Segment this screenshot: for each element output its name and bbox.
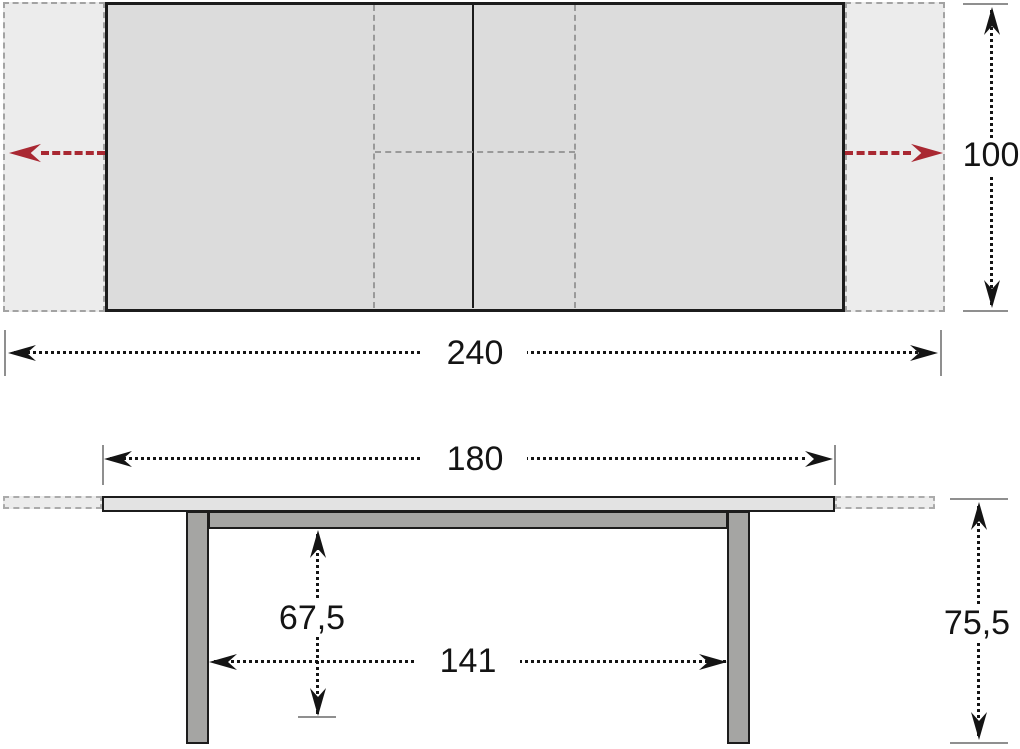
arrowhead-down-icon xyxy=(309,688,327,716)
arrowhead-right-icon xyxy=(805,450,833,468)
dim-tick xyxy=(950,498,1008,500)
length-label: 180 xyxy=(423,442,527,478)
leg-span-label: 141 xyxy=(416,644,520,680)
arrowhead-down-icon xyxy=(970,712,988,740)
dim-tick xyxy=(298,716,336,718)
side-view: 180 67,5 141 xyxy=(0,0,1020,749)
tabletop-side-panel xyxy=(102,496,835,512)
clearance-label: 67,5 xyxy=(265,601,359,637)
dim-tick xyxy=(950,742,1008,744)
arrowhead-left-icon xyxy=(104,450,132,468)
dim-tick xyxy=(834,445,836,485)
arrowhead-left-icon xyxy=(209,653,237,671)
total-height-label: 75,5 xyxy=(930,606,1020,642)
table-leg-left xyxy=(186,511,209,744)
extension-leaf-right-side xyxy=(835,496,935,509)
table-leg-right xyxy=(727,511,750,744)
table-apron xyxy=(208,511,728,529)
extension-leaf-left-side xyxy=(3,496,102,509)
dimension-diagram: 100 240 180 xyxy=(0,0,1020,749)
arrowhead-right-icon xyxy=(699,653,727,671)
